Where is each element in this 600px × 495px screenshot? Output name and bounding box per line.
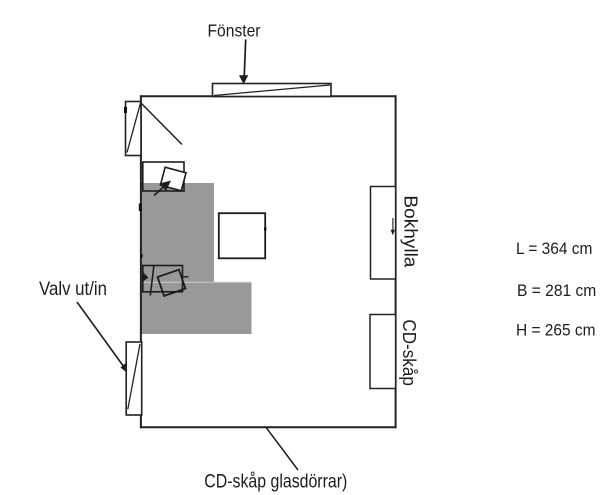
svg-text:Fönster: Fönster (208, 21, 261, 41)
svg-text:CD-skåp glasdörrar): CD-skåp glasdörrar) (204, 472, 347, 493)
svg-text:CD-skåp: CD-skåp (399, 319, 420, 386)
svg-text:L = 364 cm: L = 364 cm (516, 240, 592, 258)
svg-text:B = 281 cm: B = 281 cm (517, 282, 596, 300)
svg-text:Bokhylla: Bokhylla (401, 195, 422, 268)
svg-text:H = 265 cm: H = 265 cm (516, 322, 596, 340)
svg-text:Valv ut/in: Valv ut/in (39, 278, 107, 300)
